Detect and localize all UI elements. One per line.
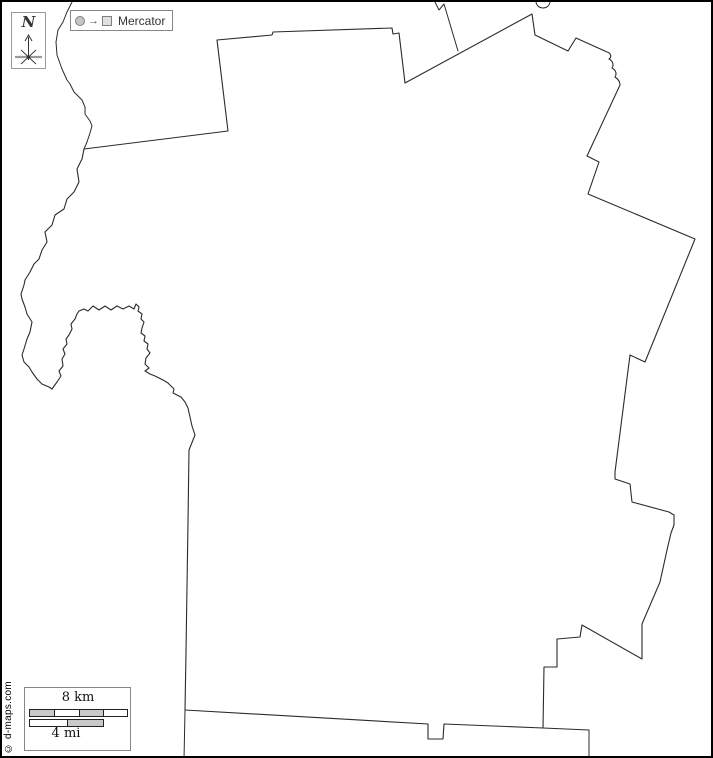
scale-bar-box: 8 km 4 mi — [24, 687, 131, 751]
scale-bar-km — [29, 709, 128, 717]
map-page: N → Mercator 8 km 4 mi © d-maps.com — [0, 0, 713, 758]
neighbor-boundary-top-notch — [435, 2, 458, 51]
region-outline-map — [2, 2, 711, 756]
scale-segment — [54, 710, 78, 716]
scale-segment — [103, 710, 127, 716]
scale-segment — [30, 710, 54, 716]
globe-circle-icon — [75, 16, 85, 26]
dmaps-copyright: © d-maps.com — [3, 681, 14, 753]
compass-north-label: N — [12, 14, 45, 31]
neighbor-boundary-bottom-left — [184, 710, 185, 756]
compass-arrow-icon — [12, 31, 45, 67]
flat-map-square-icon — [102, 16, 112, 26]
projection-badge[interactable]: → Mercator — [70, 10, 173, 31]
scale-km-label: 8 km — [62, 690, 95, 705]
neighbor-boundary-bottom-right — [543, 728, 589, 756]
scale-mi-label: 4 mi — [52, 726, 81, 741]
projection-name-label: Mercator — [118, 14, 165, 28]
county-boundary-outline — [21, 14, 695, 739]
scale-segment — [79, 710, 103, 716]
compass-rose: N — [11, 12, 46, 69]
arrow-right-icon: → — [88, 16, 99, 26]
boundary-top-arc — [536, 2, 550, 8]
